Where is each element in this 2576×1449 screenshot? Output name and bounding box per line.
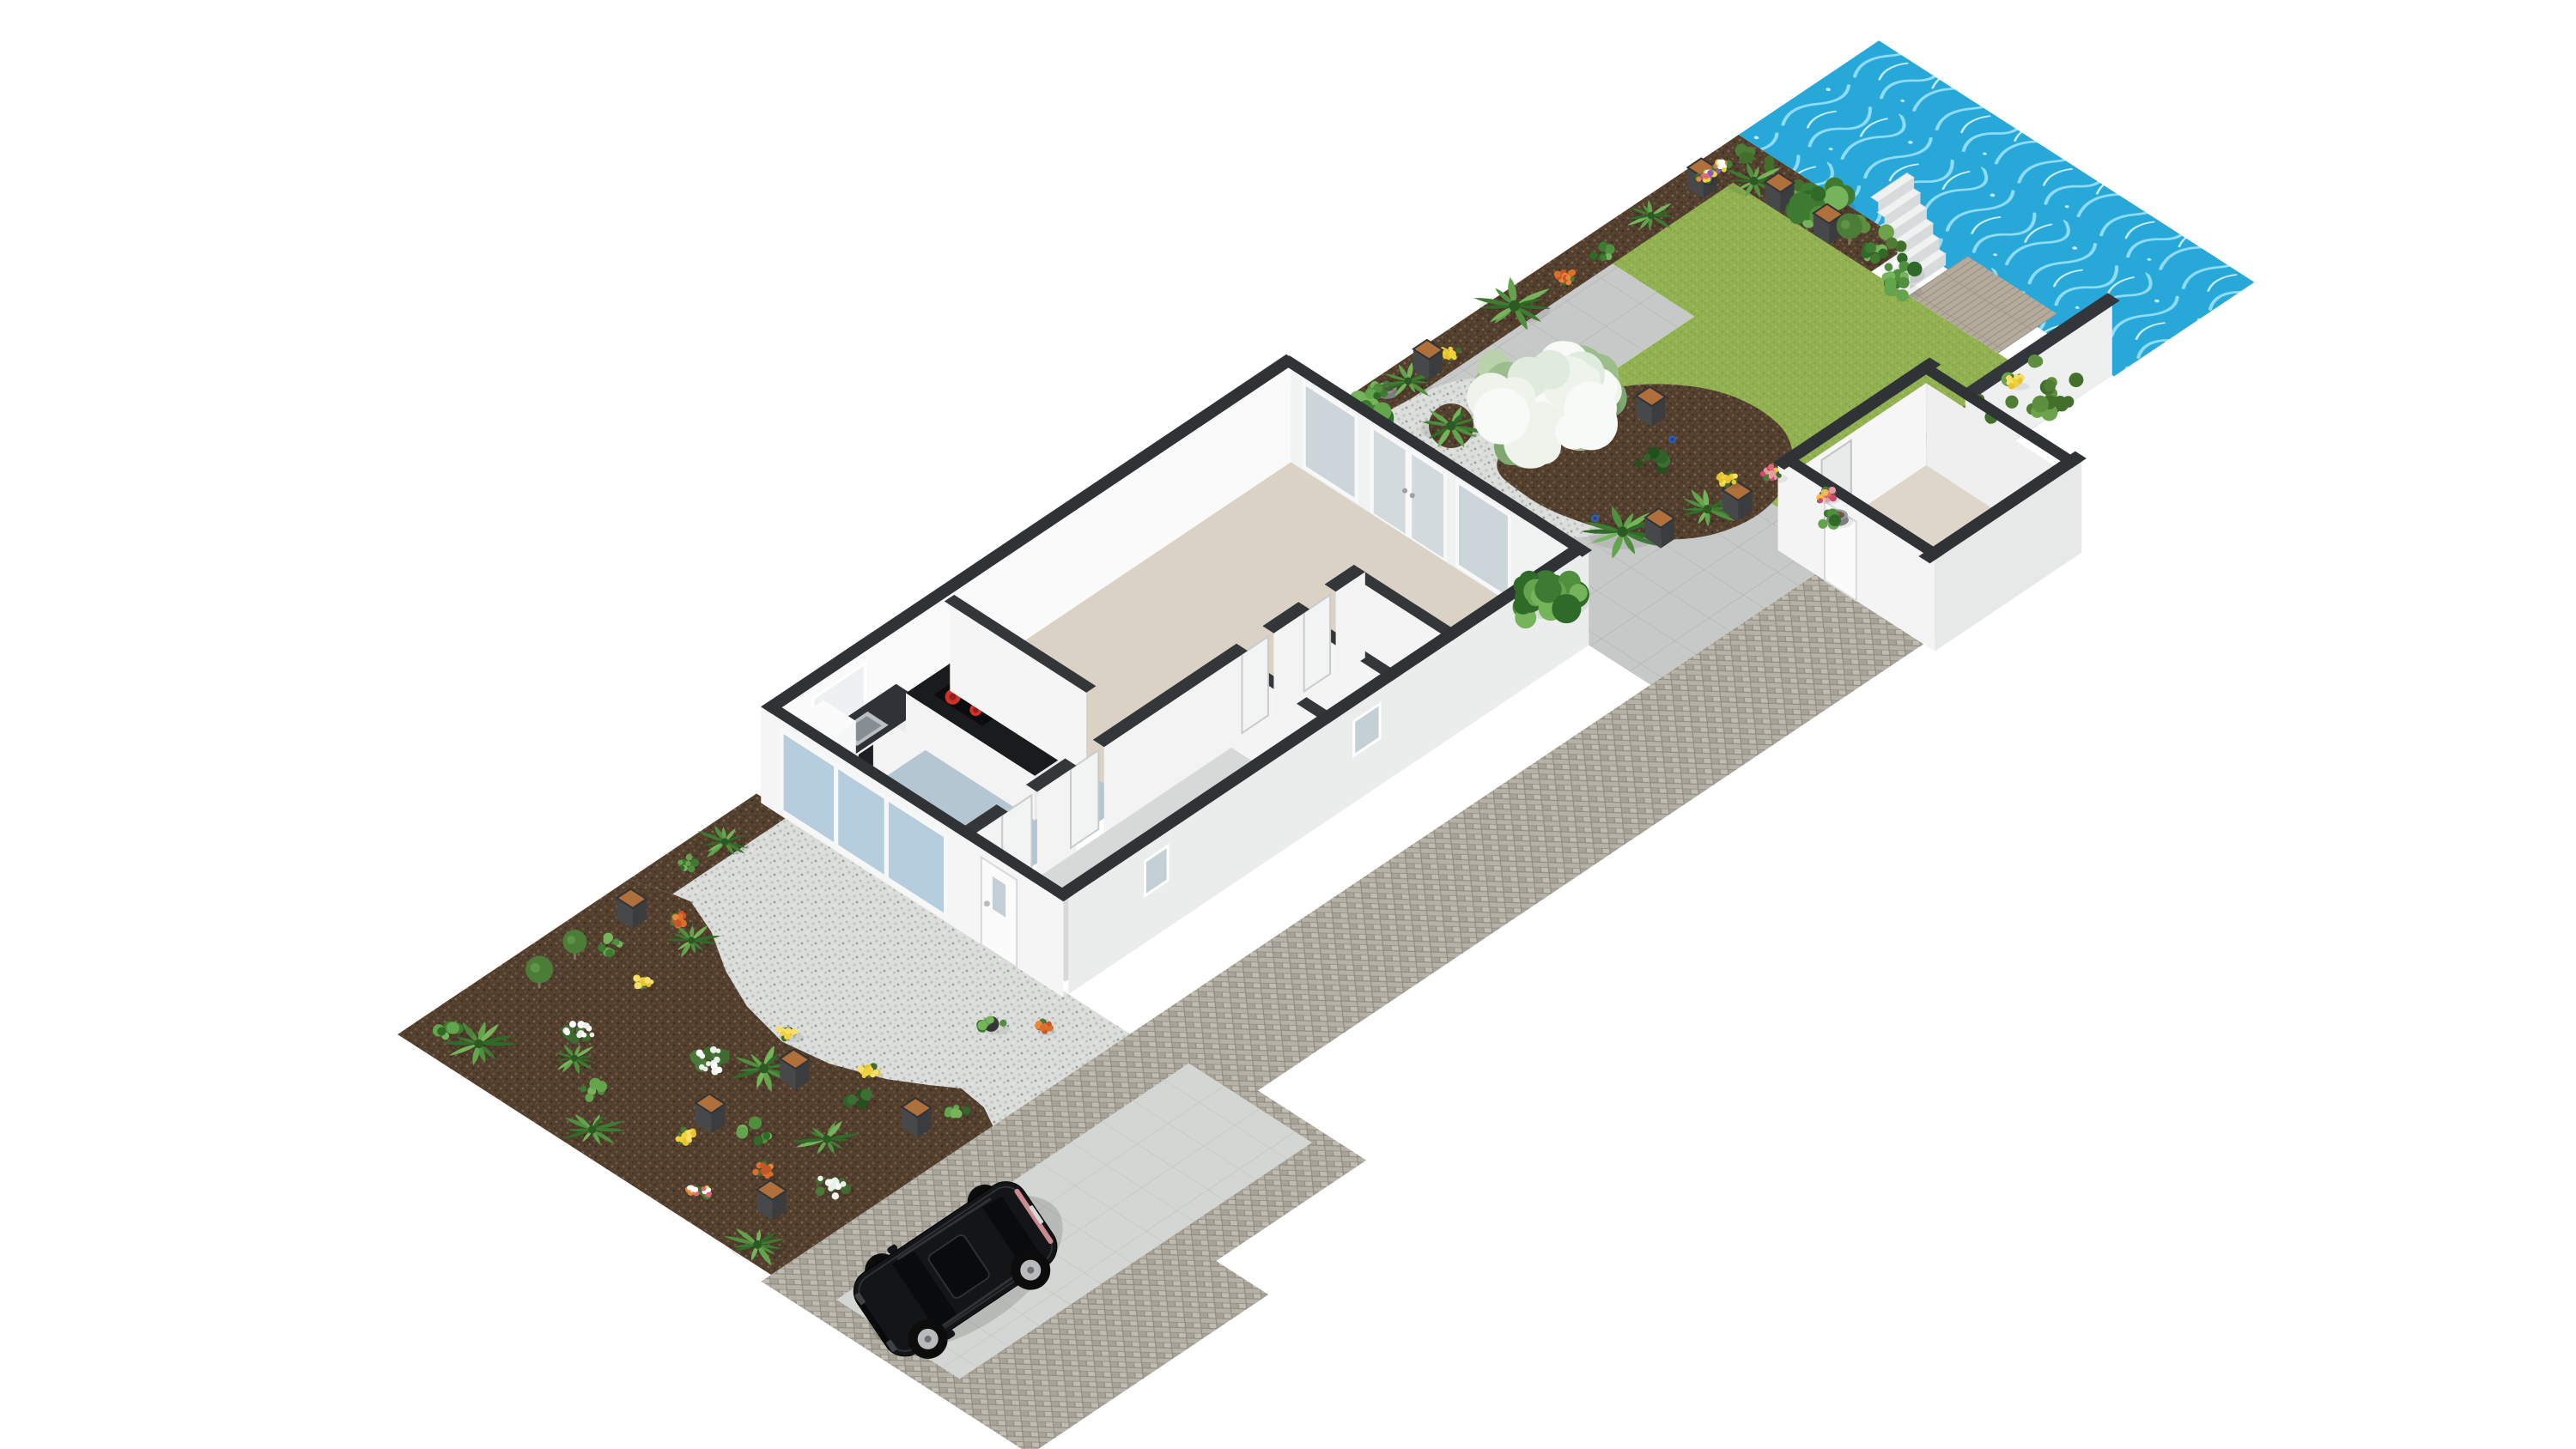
blue-pot [1591, 514, 1599, 522]
floorplan-svg [0, 0, 2576, 1449]
front-glazing-mullion [834, 764, 838, 847]
blue-pot [1668, 435, 1676, 443]
door-handle [1402, 488, 1407, 494]
border-palm [1626, 200, 1674, 230]
front-door-handle [984, 900, 990, 906]
door-handle [1410, 493, 1415, 498]
floorplan-3d-view [0, 0, 2576, 1449]
front-glazing-mullion [884, 797, 889, 880]
